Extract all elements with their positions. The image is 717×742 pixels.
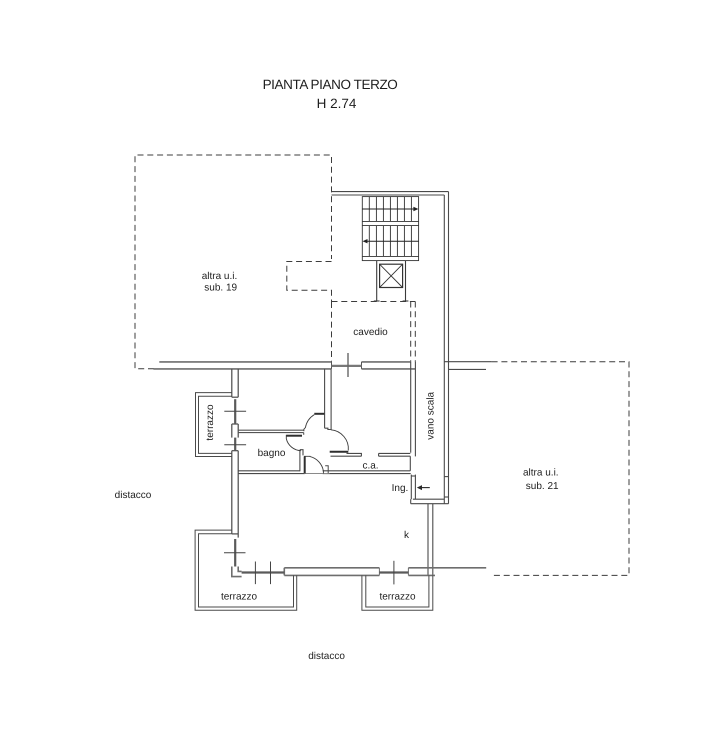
svg-text:distacco: distacco bbox=[115, 490, 152, 501]
svg-text:terrazzo: terrazzo bbox=[205, 404, 216, 441]
svg-text:distacco: distacco bbox=[308, 651, 345, 662]
svg-text:sub. 19: sub. 19 bbox=[204, 283, 237, 294]
svg-text:vano scala: vano scala bbox=[425, 391, 436, 439]
svg-text:cavedio: cavedio bbox=[353, 327, 388, 338]
svg-text:bagno: bagno bbox=[258, 448, 286, 459]
svg-text:c.a.: c.a. bbox=[362, 461, 378, 472]
svg-text:sub. 21: sub. 21 bbox=[526, 481, 559, 492]
svg-text:PIANTA PIANO TERZO: PIANTA PIANO TERZO bbox=[263, 77, 398, 92]
svg-text:terrazzo: terrazzo bbox=[379, 592, 416, 603]
svg-text:terrazzo: terrazzo bbox=[221, 592, 258, 603]
svg-text:Ing.: Ing. bbox=[392, 483, 409, 494]
svg-text:altra u.i.: altra u.i. bbox=[523, 468, 559, 479]
svg-text:H 2.74: H 2.74 bbox=[317, 96, 357, 111]
svg-text:altra u.i.: altra u.i. bbox=[202, 271, 238, 282]
